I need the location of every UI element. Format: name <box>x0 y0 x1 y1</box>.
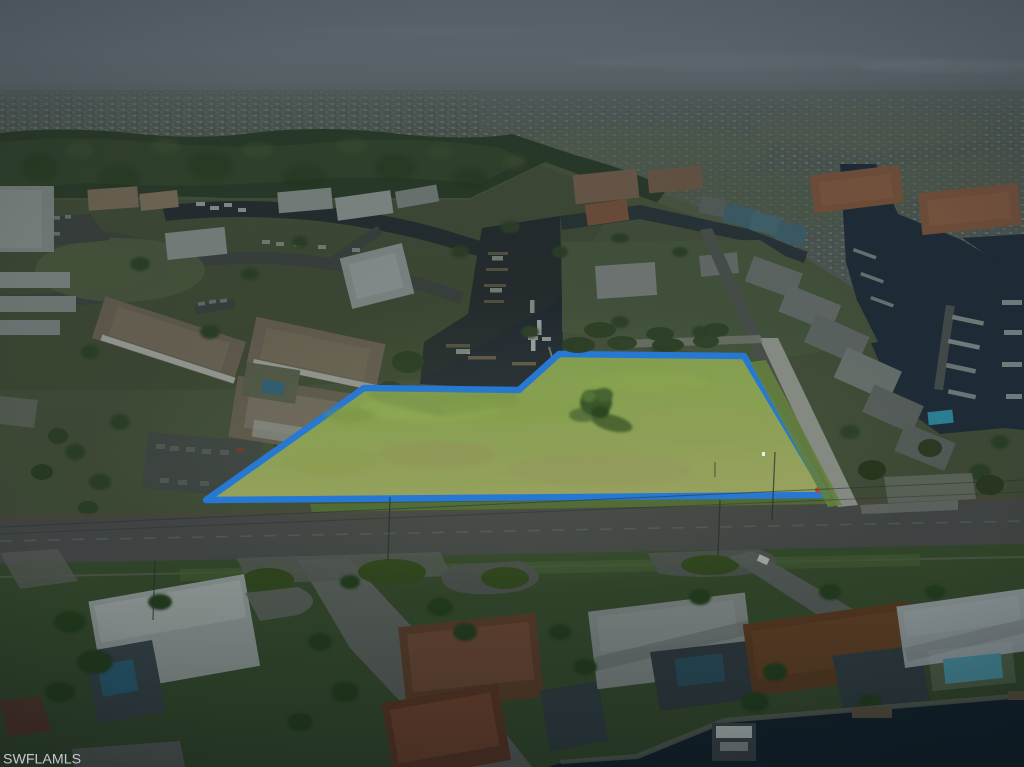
svg-text:SWFLAMLS: SWFLAMLS <box>3 752 81 767</box>
